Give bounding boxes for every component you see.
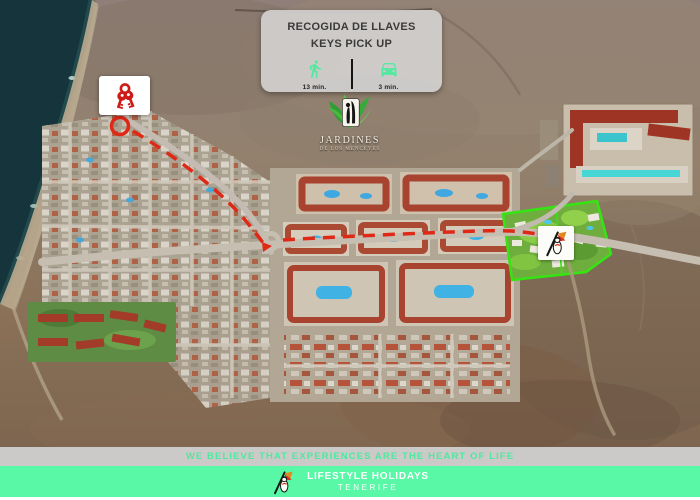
divider — [351, 59, 353, 89]
lifestyle-logo-icon — [271, 469, 295, 495]
card-title-english: KEYS PICK UP — [261, 36, 442, 53]
walk-time-label: 13 min. — [303, 84, 327, 91]
flyer: RECOGIDA DE LLAVES KEYS PICK UP 13 min. … — [0, 0, 700, 500]
resort-logo-chip — [538, 226, 574, 260]
hotel-complex — [540, 104, 693, 196]
jardines-logo: JARDINES DE LOS MENCEYES — [312, 93, 388, 152]
gardens-complex — [28, 302, 176, 362]
tagline-text: WE BELIEVE THAT EXPERIENCES ARE THE HEAR… — [186, 451, 514, 462]
town-area-central — [270, 168, 520, 402]
jardines-emblem-icon — [326, 93, 374, 133]
footer-text: LIFESTYLE HOLIDAYS TENERIFE — [307, 471, 429, 492]
walking-person-icon — [305, 59, 325, 79]
car-icon — [378, 59, 400, 79]
walk-time-block: 13 min. — [287, 59, 343, 91]
travel-times-row: 13 min. 3 min. — [261, 59, 442, 91]
jardines-subtitle: DE LOS MENCEYES — [320, 147, 381, 152]
footer-location: TENERIFE — [338, 483, 398, 492]
keys-pickup-card: RECOGIDA DE LLAVES KEYS PICK UP 13 min. … — [261, 10, 442, 92]
footer-brand: LIFESTYLE HOLIDAYS — [307, 471, 429, 482]
map-area: RECOGIDA DE LLAVES KEYS PICK UP 13 min. … — [0, 0, 700, 447]
footer: LIFESTYLE HOLIDAYS TENERIFE — [0, 466, 700, 497]
jardines-title: JARDINES — [320, 135, 380, 146]
keys-icon — [110, 82, 140, 110]
lifestyle-figure-icon — [543, 229, 569, 257]
drive-time-block: 3 min. — [361, 59, 417, 91]
keys-pickup-marker — [99, 76, 150, 115]
tagline-banner: WE BELIEVE THAT EXPERIENCES ARE THE HEAR… — [0, 447, 700, 466]
card-title-spanish: RECOGIDA DE LLAVES — [261, 19, 442, 36]
drive-time-label: 3 min. — [379, 84, 399, 91]
